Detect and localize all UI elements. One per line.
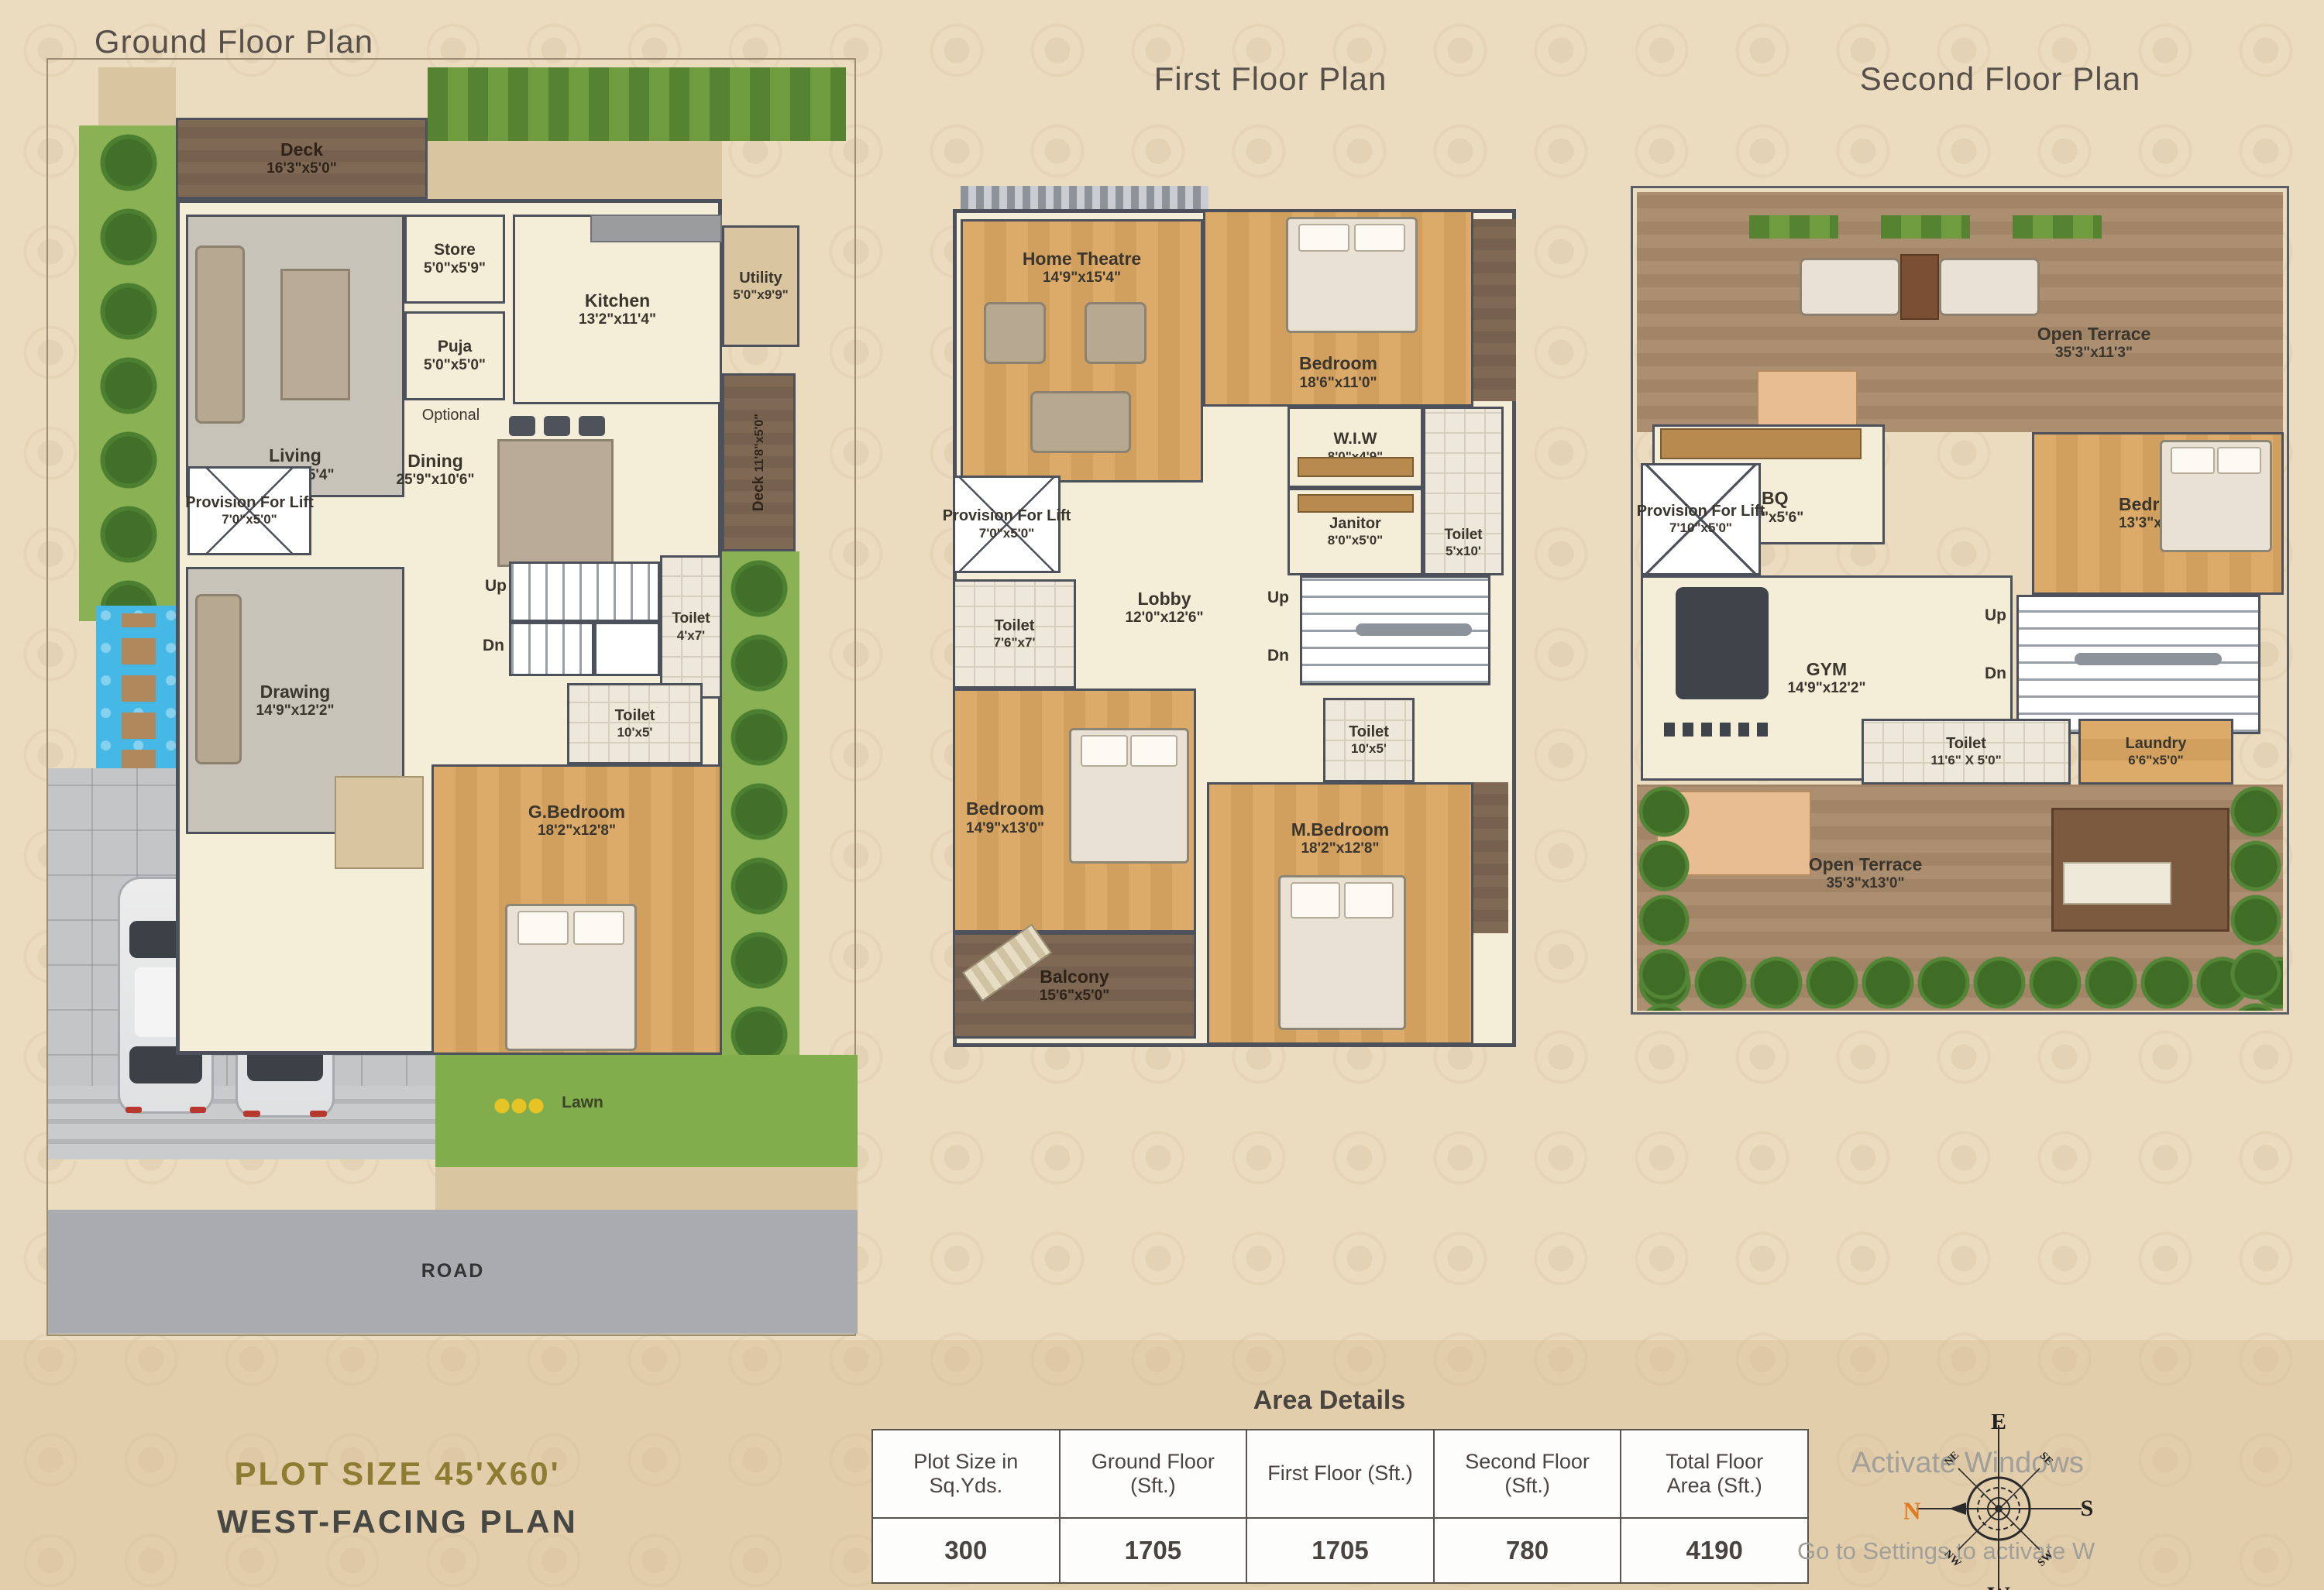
lobby-dims: 12'0"x12'6"	[1125, 610, 1203, 627]
pool-stepping-stones	[122, 613, 156, 776]
wardrobe	[1298, 457, 1414, 477]
toilet-mid-room: Toilet 10'x5'	[567, 683, 703, 764]
bed-pillow	[573, 911, 624, 945]
g-bedroom-dims: 18'2"x12'8"	[538, 822, 616, 840]
bedroom-left-dims: 14'9"x13'0"	[966, 820, 1044, 837]
lift-provision-ground: Provision For Lift 7'0"x5'0"	[187, 466, 311, 555]
lift-provision-first: Provision For Lift 7'0"x5'0"	[953, 476, 1061, 573]
toilet-second-label: Toilet	[1946, 735, 1986, 754]
gym-dims: 14'9"x12'2"	[1787, 680, 1865, 697]
utility-label: Utility	[739, 270, 782, 288]
table-value-cell: 300	[873, 1519, 1059, 1582]
kitchen-counter	[590, 215, 722, 242]
bed-pillow	[1344, 882, 1394, 919]
stair-rail-second	[2075, 653, 2222, 665]
paving-top-right	[428, 141, 722, 199]
deck-right-label: Deck 11'8"x5'0"	[750, 414, 767, 511]
car-taillight	[243, 1111, 260, 1117]
compass-northwest-label: NW	[1941, 1548, 1963, 1570]
table-header-cell: First Floor (Sft.)	[1246, 1430, 1433, 1517]
second-floor-title: Second Floor Plan	[1860, 60, 2141, 98]
side-ledge-top	[1473, 219, 1516, 401]
garden-strip-left	[79, 125, 178, 621]
home-theatre-label: Home Theatre	[1023, 249, 1141, 270]
laundry-room: Laundry 6'6"x5'0"	[2078, 719, 2233, 785]
bed-pillow	[1354, 224, 1405, 252]
m-bedroom-label: M.Bedroom	[1291, 819, 1390, 840]
bed-pillow	[1298, 224, 1349, 252]
bedroom-left-label: Bedroom	[966, 798, 1044, 819]
table-header-row: Plot Size in Sq.Yds. Ground Floor (Sft.)…	[873, 1430, 1807, 1519]
utility-room: Utility 5'0"x9'9"	[722, 225, 799, 347]
toilet-mid-first-dims: 10'x5'	[1351, 741, 1387, 757]
dining-dims: 25'9"x10'6"	[396, 472, 474, 489]
toilet-mid-dims: 10'x5'	[617, 725, 653, 740]
terrace-top-label: Open Terrace	[2037, 324, 2151, 345]
janitor-shelf	[1298, 494, 1414, 513]
deck-right-dims: 11'8"x5'0"	[752, 414, 765, 472]
toilet-left-dims: 7'6"x7'	[994, 635, 1036, 651]
stairs-up-first: Up	[1267, 589, 1289, 608]
terrace-sofa	[1939, 258, 2040, 316]
table-value-cell: 1705	[1059, 1519, 1246, 1582]
lift-provision-second: Provision For Lift 7'10"x5'0"	[1641, 463, 1761, 575]
stairs-lower-run	[509, 622, 594, 676]
lift-second-label: Provision For Lift	[1637, 503, 1765, 521]
recliner-double	[1030, 391, 1131, 453]
table-value-cell: 1705	[1246, 1519, 1433, 1582]
lawn-label: Lawn	[562, 1094, 603, 1113]
toilet-top-label: Toilet	[672, 610, 710, 627]
road-label: ROAD	[421, 1260, 485, 1283]
hedge-row-right	[2229, 785, 2283, 1011]
toilet-mid-first-room: Toilet 10'x5'	[1323, 698, 1415, 782]
toilet-mid-first-label: Toilet	[1349, 723, 1389, 742]
entrance-mat	[335, 776, 424, 869]
second-floor-plan: Open Terrace 35'3"x11'3" BBQ 14'9"x5'6" …	[1631, 186, 2289, 1015]
terrace-bottom-label-group: Open Terrace 35'3"x13'0"	[1809, 854, 1923, 893]
living-sofa	[195, 246, 245, 424]
kitchen-dims: 13'2"x11'4"	[579, 311, 656, 328]
bed-pillow	[2217, 447, 2261, 474]
bed-pillow	[1081, 735, 1128, 767]
dining-label: Dining	[407, 451, 463, 472]
compass-north-label: N	[1904, 1496, 1921, 1524]
toilet-second-dims: 11'6" X 5'0"	[1930, 753, 2001, 768]
treadmill	[1676, 587, 1769, 699]
dining-chair	[579, 416, 605, 436]
drawing-label: Drawing	[260, 682, 331, 702]
bedroom-top-bed	[1286, 217, 1418, 333]
deck-top-room: Deck 16'3"x5'0"	[176, 118, 428, 199]
planter-box	[2013, 215, 2102, 239]
dining-table	[497, 439, 614, 567]
area-details-table: Plot Size in Sq.Yds. Ground Floor (Sft.)…	[871, 1429, 1809, 1584]
terrace-top-dims: 35'3"x11'3"	[2055, 345, 2133, 362]
stairs-up-second: Up	[1985, 606, 2006, 626]
table-header-cell: Ground Floor (Sft.)	[1059, 1430, 1246, 1517]
stairs-landing	[594, 622, 660, 676]
drawing-sofa	[195, 594, 242, 764]
toilet-top-room: Toilet 4'x7'	[660, 555, 722, 699]
table-header-cell: Total Floor Area (Sft.)	[1620, 1430, 1807, 1517]
lawn-top-right	[428, 67, 846, 141]
compass-southwest-label: SW	[2036, 1549, 2056, 1569]
first-floor-title: First Floor Plan	[1154, 60, 1387, 98]
lobby-label-group: Lobby 12'0"x12'6"	[1125, 589, 1203, 627]
stairs-dn-label: Dn	[483, 637, 504, 656]
store-dims: 5'0"x5'9"	[424, 260, 486, 277]
ground-floor-title: Ground Floor Plan	[95, 23, 373, 60]
toilet-left-label: Toilet	[995, 617, 1035, 636]
up-text-second: Up	[1985, 606, 2006, 626]
side-ledge-bottom	[1473, 782, 1508, 933]
planter-box	[1881, 215, 1970, 239]
puja-dims: 5'0"x5'0"	[424, 357, 486, 374]
deck-top-label: Deck	[280, 139, 323, 160]
dn-text-first: Dn	[1267, 647, 1289, 666]
planter-box	[1749, 215, 1838, 239]
lift-dims: 7'0"x5'0"	[222, 512, 277, 527]
bedroom-top-dims: 18'6"x11'0"	[1300, 375, 1377, 392]
compass-west-label: W	[1987, 1582, 2010, 1590]
table-value-row: 300 1705 1705 780 4190	[873, 1519, 1807, 1582]
garden-strip-right	[722, 551, 799, 1055]
lift-second-dims: 7'10"x5'0"	[1669, 520, 1732, 536]
drawing-dims: 14'9"x12'2"	[256, 702, 334, 719]
compass-south-label: S	[2081, 1496, 2094, 1521]
wiw-label: W.I.W	[1334, 430, 1377, 449]
gym-label: GYM	[1807, 659, 1847, 680]
lawn-label-group: Lawn	[562, 1094, 603, 1113]
sand-strip	[435, 1167, 858, 1210]
up-text-first: Up	[1267, 589, 1289, 608]
living-label: Living	[269, 445, 321, 466]
bedroom-second-bed	[2160, 440, 2272, 552]
lift-first-dims: 7'0"x5'0"	[979, 526, 1034, 541]
flower-bed	[493, 1097, 545, 1114]
stairs-upper-run	[509, 561, 660, 622]
utility-dims: 5'0"x9'9"	[733, 287, 788, 303]
store-label: Store	[434, 241, 476, 260]
floor-plan-sheet: Ground Floor Plan Deck 16'3	[0, 0, 2324, 1590]
bed-pillow	[517, 911, 569, 945]
compass-east-label: E	[1991, 1414, 2006, 1434]
terrace-bottom-label: Open Terrace	[1809, 854, 1923, 875]
hedge-row-bottom	[1637, 955, 2283, 1011]
laundry-dims: 6'6"x5'0"	[2128, 753, 2183, 768]
dining-chair	[509, 416, 535, 436]
compass-southeast-label: SE	[2037, 1450, 2055, 1468]
ground-floor-plan: Deck 16'3"x5'0" Living 14'9"x15'4" Store…	[46, 58, 856, 1336]
nook-sofa	[2063, 862, 2171, 905]
bedroom-left-bed	[1069, 728, 1189, 864]
toilet-right-room: Toilet 5'x10'	[1423, 407, 1504, 575]
toilet-right-dims: 5'x10'	[1446, 544, 1481, 559]
bed-pillow	[1291, 882, 1340, 919]
road-area: ROAD	[48, 1210, 858, 1334]
optional-label: Optional	[422, 407, 480, 425]
up-text: Up	[485, 577, 507, 596]
first-floor-plan: Home Theatre 14'9"x15'4" Bedroom 18'6"x1…	[953, 201, 1580, 1049]
lift-label: Provision For Lift	[185, 494, 314, 513]
dining-chair	[544, 416, 570, 436]
stairs-up-label: Up	[485, 577, 507, 596]
table-value-cell: 4190	[1620, 1519, 1807, 1582]
deck-right-room: Deck 11'8"x5'0"	[722, 373, 796, 551]
balcony-dims: 15'6"x5'0"	[1040, 987, 1109, 1004]
compass-rose: E S W N NE SE SW NW	[1904, 1414, 2094, 1590]
compass-northeast-label: NE	[1943, 1450, 1961, 1468]
toilet-left-room: Toilet 7'6"x7'	[953, 579, 1076, 689]
plot-size-block: PLOT SIZE 45'X60' WEST-FACING PLAN	[217, 1454, 578, 1540]
recliner	[1085, 302, 1147, 364]
car-taillight	[190, 1107, 206, 1113]
puja-label: Puja	[438, 338, 472, 357]
louver-shade	[961, 186, 1208, 209]
living-table	[280, 269, 350, 400]
m-bedroom-bed	[1278, 875, 1406, 1030]
store-room: Store 5'0"x5'9"	[404, 215, 505, 304]
janitor-label: Janitor	[1329, 515, 1381, 534]
terrace-bottom-dims: 35'3"x13'0"	[1826, 875, 1904, 892]
facing-text: WEST-FACING PLAN	[217, 1502, 578, 1541]
home-theatre-dims: 14'9"x15'4"	[1043, 270, 1121, 287]
table-value-cell: 780	[1433, 1519, 1621, 1582]
toilet-top-dims: 4'x7'	[677, 628, 705, 644]
optional-text: Optional	[422, 407, 480, 425]
kitchen-room: Kitchen 13'2"x11'4"	[513, 215, 722, 404]
toilet-mid-label: Toilet	[615, 707, 655, 726]
area-details-title: Area Details	[1253, 1385, 1406, 1416]
m-bedroom-dims: 18'2"x12'8"	[1301, 840, 1379, 857]
bedroom-top-label: Bedroom	[1299, 353, 1377, 374]
compass-center-dot	[1995, 1505, 2003, 1513]
terrace-sofa	[1800, 258, 1900, 316]
compass-needle	[1949, 1502, 1966, 1515]
deck-right-name: Deck	[750, 476, 766, 511]
bbq-counter	[1660, 428, 1862, 459]
deck-top-dims: 16'3"x5'0"	[266, 160, 336, 177]
puja-room: Puja 5'0"x5'0"	[404, 311, 505, 400]
table-header-cell: Second Floor (Sft.)	[1433, 1430, 1621, 1517]
toilet-right-label: Toilet	[1444, 527, 1482, 544]
terrace-stair-hood	[1757, 370, 1858, 432]
recliner	[984, 302, 1046, 364]
hedge-row-left	[1637, 785, 1691, 1011]
table-header-cell: Plot Size in Sq.Yds.	[873, 1430, 1059, 1517]
stairs-dn-first: Dn	[1267, 647, 1289, 666]
toilet-second-room: Toilet 11'6" X 5'0"	[1862, 719, 2071, 785]
car-taillight	[310, 1111, 327, 1117]
bed-pillow	[1130, 735, 1177, 767]
lobby-label: Lobby	[1138, 589, 1191, 610]
stair-rail	[1356, 623, 1472, 636]
stairs-dn-second: Dn	[1985, 665, 2006, 684]
dumbbell-rack	[1664, 723, 1772, 737]
paved-corner	[98, 67, 176, 133]
g-bedroom-bed	[505, 904, 637, 1051]
dining-label-group: Dining 25'9"x10'6"	[396, 451, 474, 489]
dn-text: Dn	[483, 637, 504, 656]
g-bedroom-label: G.Bedroom	[528, 802, 625, 822]
area-details-title-text: Area Details	[1253, 1385, 1406, 1416]
terrace-top-label-group: Open Terrace 35'3"x11'3"	[2037, 324, 2151, 362]
plot-size-text: PLOT SIZE 45'X60'	[234, 1454, 560, 1493]
balcony-label: Balcony	[1040, 967, 1109, 987]
dn-text-second: Dn	[1985, 665, 2006, 684]
bed-pillow	[2171, 447, 2215, 474]
laundry-label: Laundry	[2126, 735, 2187, 754]
car-taillight	[125, 1107, 142, 1113]
terrace-table	[1900, 254, 1939, 320]
kitchen-label: Kitchen	[585, 290, 650, 311]
lift-first-label: Provision For Lift	[943, 507, 1071, 526]
janitor-dims: 8'0"x5'0"	[1328, 533, 1383, 548]
